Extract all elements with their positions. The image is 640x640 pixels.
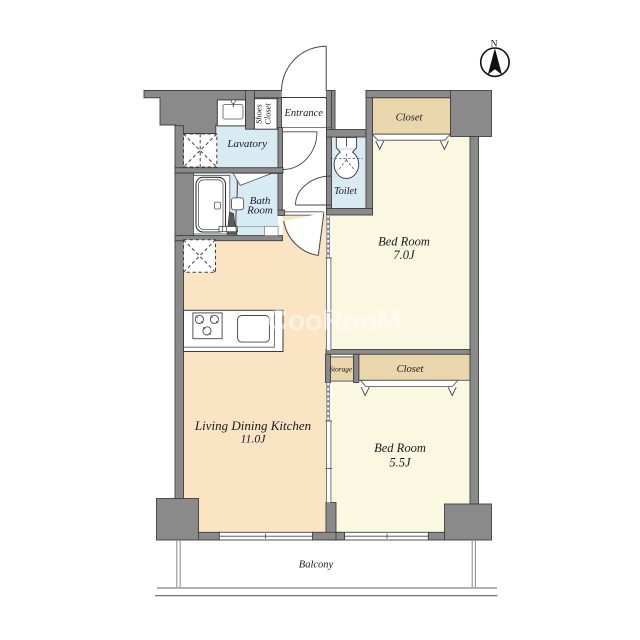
svg-text:Lavatory: Lavatory [226,138,267,150]
svg-text:Closet: Closet [264,103,273,125]
svg-text:Bed Room: Bed Room [374,441,426,455]
svg-text:Storage: Storage [329,365,352,374]
svg-text:Toilet: Toilet [334,186,358,197]
svg-text:Closet: Closet [396,113,424,124]
svg-text:5.5J: 5.5J [389,456,412,470]
svg-text:Shoes: Shoes [255,104,264,124]
svg-text:Room: Room [246,204,273,216]
svg-text:7.0J: 7.0J [393,248,416,262]
svg-text:Bed Room: Bed Room [378,235,430,249]
svg-text:Entrance: Entrance [283,108,323,119]
svg-text:11.0J: 11.0J [240,431,266,445]
svg-text:Balcony: Balcony [299,560,334,571]
svg-text:N: N [491,40,498,50]
svg-text:Closet: Closet [397,364,425,375]
svg-text:CooRooM: CooRooM [267,305,400,337]
